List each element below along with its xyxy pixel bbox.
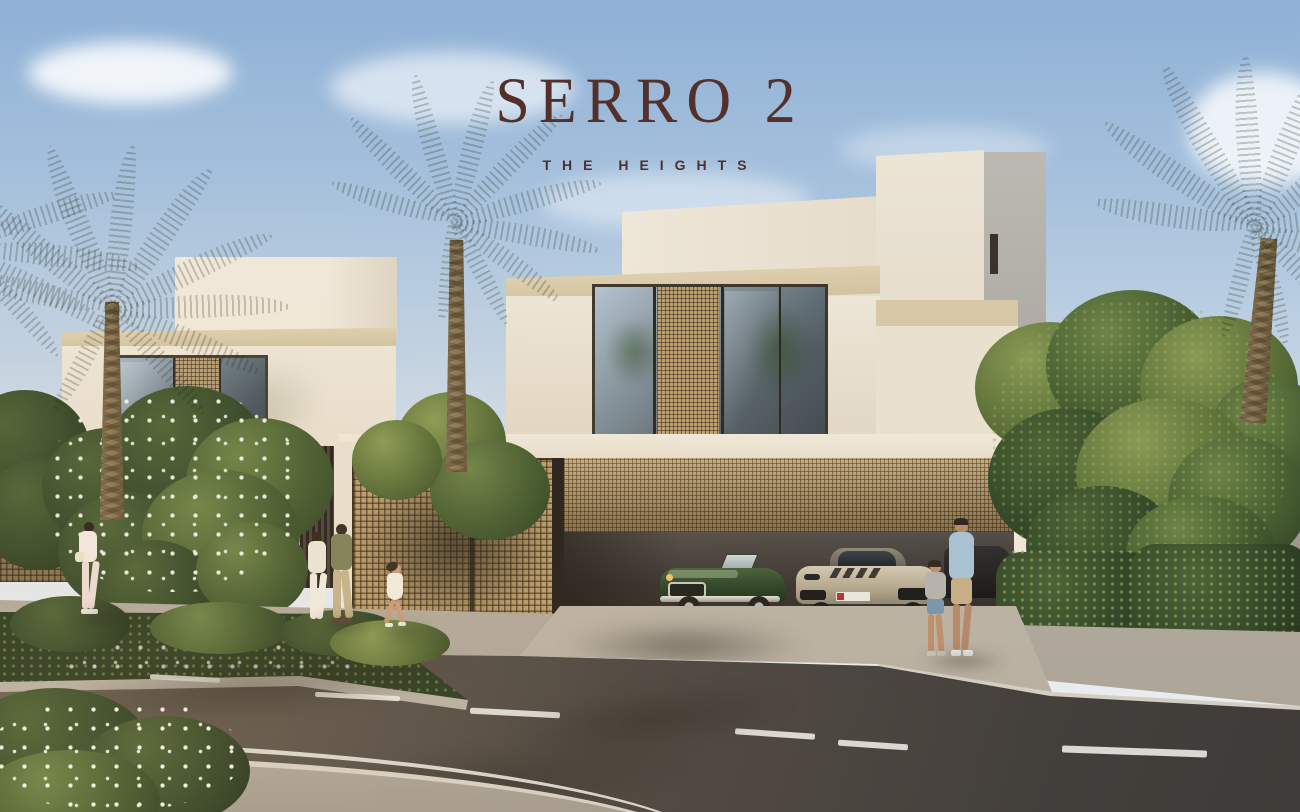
person-legs — [341, 570, 354, 619]
brand-lockup: SERRO 2 THE HEIGHTS — [0, 66, 1300, 173]
person-legs — [953, 604, 960, 650]
slit-window — [990, 234, 998, 274]
architectural-render: SERRO 2 THE HEIGHTS — [0, 0, 1300, 812]
median-shrub — [10, 596, 130, 652]
father-right — [946, 520, 976, 660]
window-cane-panel — [657, 287, 719, 439]
person-legs — [87, 561, 100, 609]
flower-bed-blossoms — [0, 700, 240, 810]
person-legs — [961, 604, 972, 650]
median-shrub — [150, 602, 290, 654]
person-hair — [954, 518, 968, 525]
person-torso — [949, 532, 974, 580]
mesh-seam — [552, 458, 564, 628]
window-mullion — [779, 287, 781, 439]
boy-right — [924, 562, 948, 662]
car-intake — [800, 590, 826, 600]
people-shadow — [918, 654, 1008, 668]
project-title: SERRO 2 — [0, 65, 1300, 139]
couple-man — [330, 524, 354, 624]
people-shadow — [70, 612, 130, 624]
person-legs — [333, 570, 341, 618]
project-tagline: THE HEIGHTS — [0, 157, 1300, 173]
couple-woman — [307, 532, 329, 624]
person-dress — [387, 573, 403, 600]
person-legs — [935, 614, 944, 652]
person-shorts — [951, 578, 972, 604]
car-headlight — [804, 574, 820, 580]
window-palm-reflection — [605, 317, 665, 387]
car-hood-stripes — [829, 568, 881, 578]
window-mullion — [721, 287, 724, 439]
person-torso — [925, 572, 946, 599]
woman-walking-left — [78, 522, 102, 618]
license-plate — [836, 592, 870, 601]
gate-greenery — [352, 420, 442, 500]
person-legs — [316, 573, 328, 619]
car-headlight — [666, 574, 673, 581]
person-torso — [308, 541, 326, 573]
person-legs — [394, 600, 405, 624]
plate-red-mark — [837, 593, 844, 600]
window-reflection — [725, 291, 777, 431]
car-hood-highlight — [668, 570, 738, 578]
person-legs — [928, 614, 934, 652]
people-shadow — [380, 628, 430, 638]
people-shadow — [300, 618, 390, 631]
main-villa-window — [592, 284, 828, 442]
person-torso — [331, 534, 352, 570]
person-shorts — [927, 599, 944, 614]
car-windshield — [838, 551, 896, 567]
person-hair — [928, 560, 941, 567]
window-mullion — [653, 287, 656, 439]
person-shoes — [398, 622, 406, 626]
